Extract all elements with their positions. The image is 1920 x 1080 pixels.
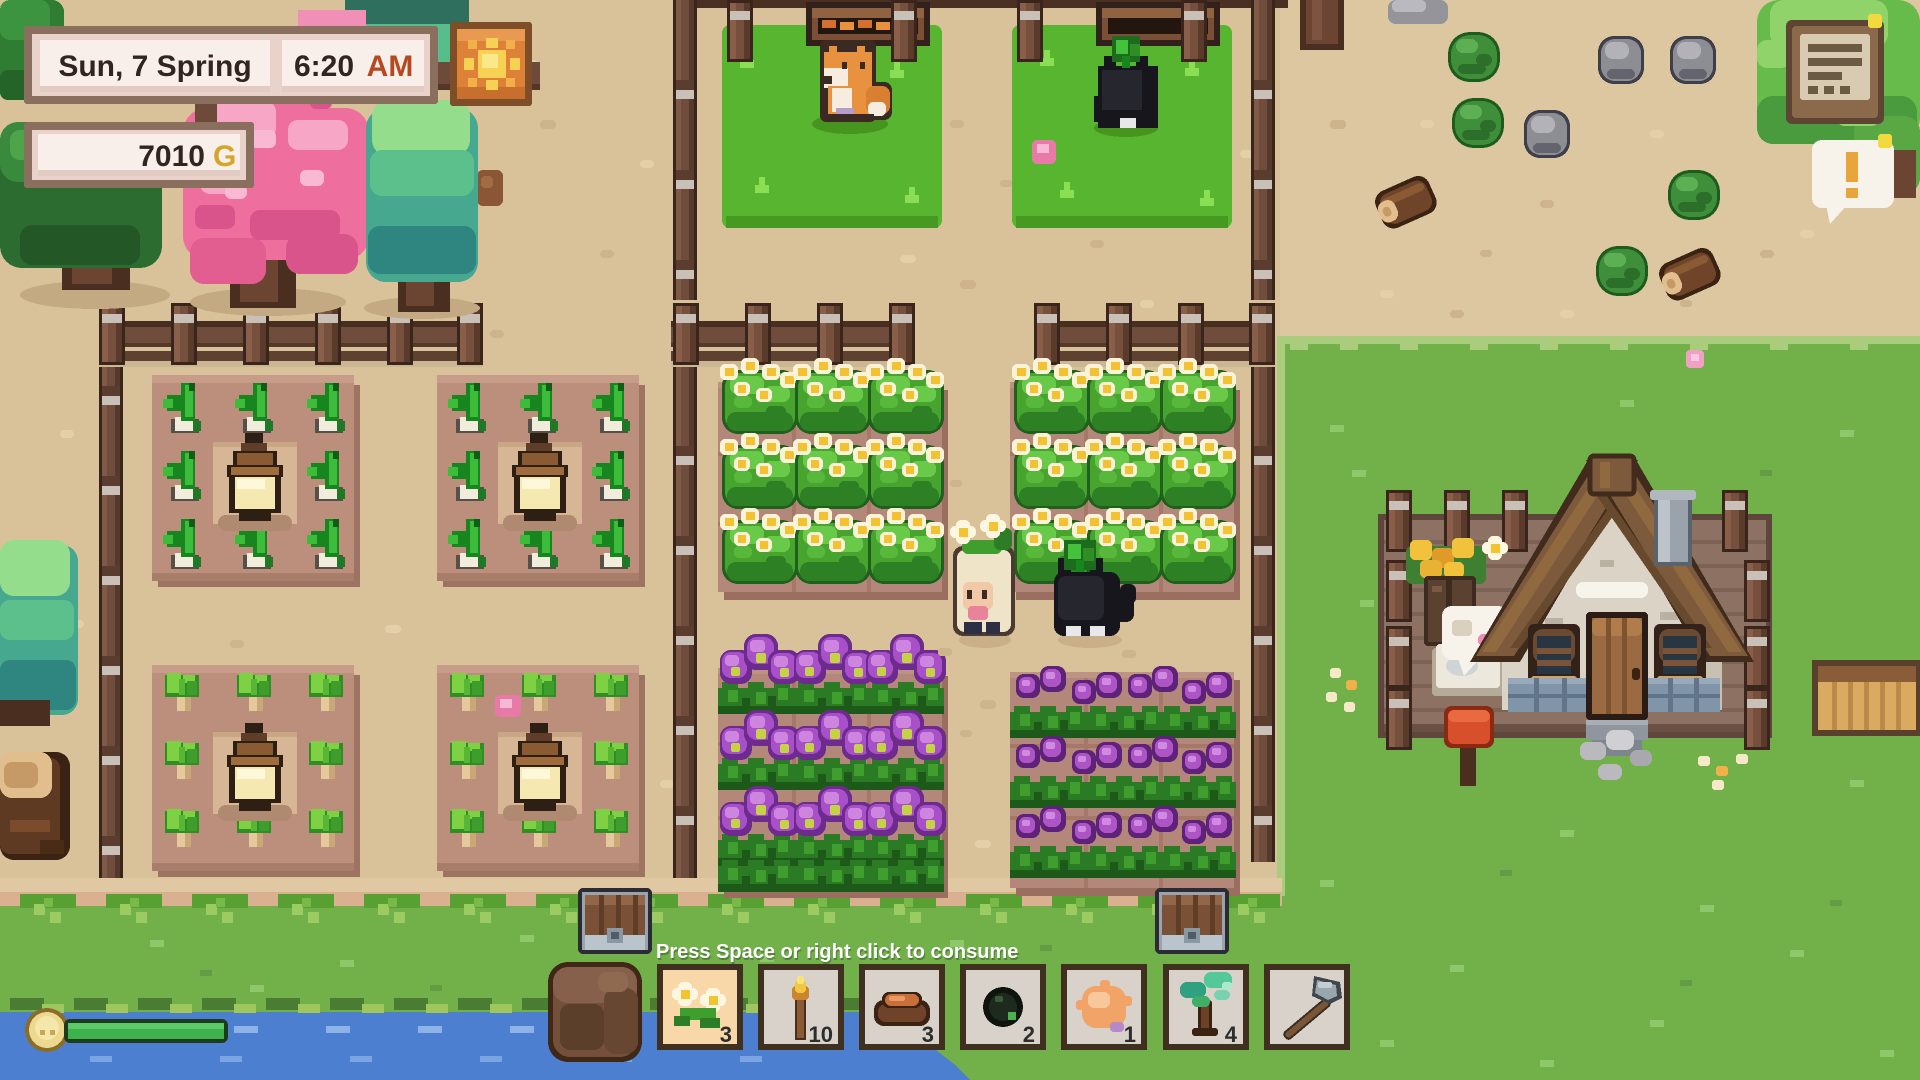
svg-text:3: 3: [922, 1022, 934, 1047]
svg-text:1: 1: [1124, 1022, 1136, 1047]
svg-text:Press Space or right click to: Press Space or right click to consume: [656, 941, 1018, 963]
svg-text:2: 2: [1023, 1022, 1035, 1047]
svg-text:AM: AM: [367, 50, 414, 83]
svg-text:Sun, 7 Spring: Sun, 7 Spring: [58, 50, 251, 83]
svg-text:6:20: 6:20: [294, 50, 354, 83]
svg-text:10: 10: [809, 1022, 833, 1047]
svg-text:G: G: [213, 140, 236, 173]
svg-text:4: 4: [1225, 1022, 1238, 1047]
svg-text:3: 3: [720, 1022, 732, 1047]
svg-text:7010: 7010: [138, 140, 205, 173]
